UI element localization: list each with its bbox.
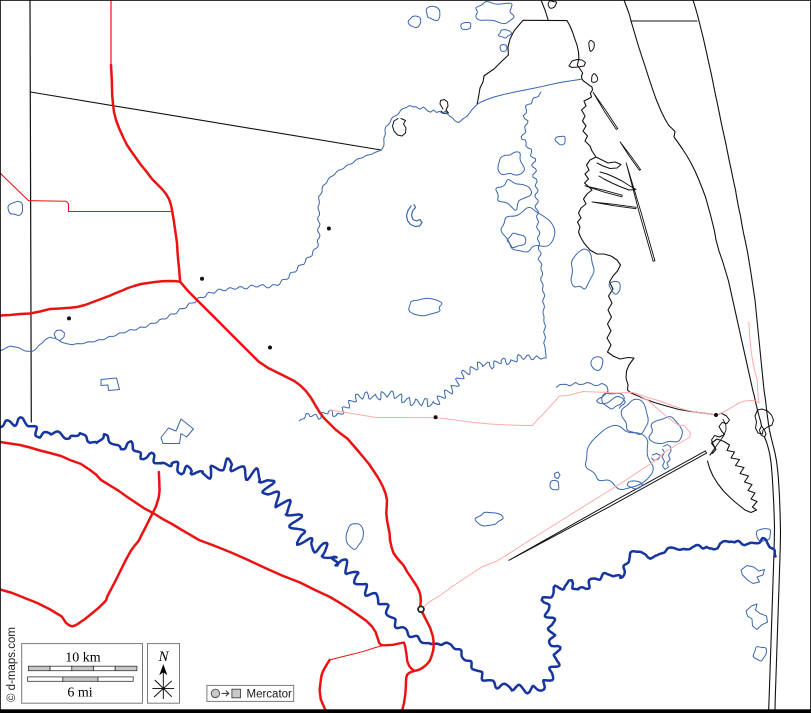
svg-text:Mercator: Mercator — [247, 689, 293, 701]
svg-text:10 km: 10 km — [65, 651, 101, 666]
svg-text:© d-maps.com: © d-maps.com — [6, 627, 18, 702]
svg-text:N: N — [157, 649, 169, 665]
svg-text:6 mi: 6 mi — [67, 686, 92, 701]
